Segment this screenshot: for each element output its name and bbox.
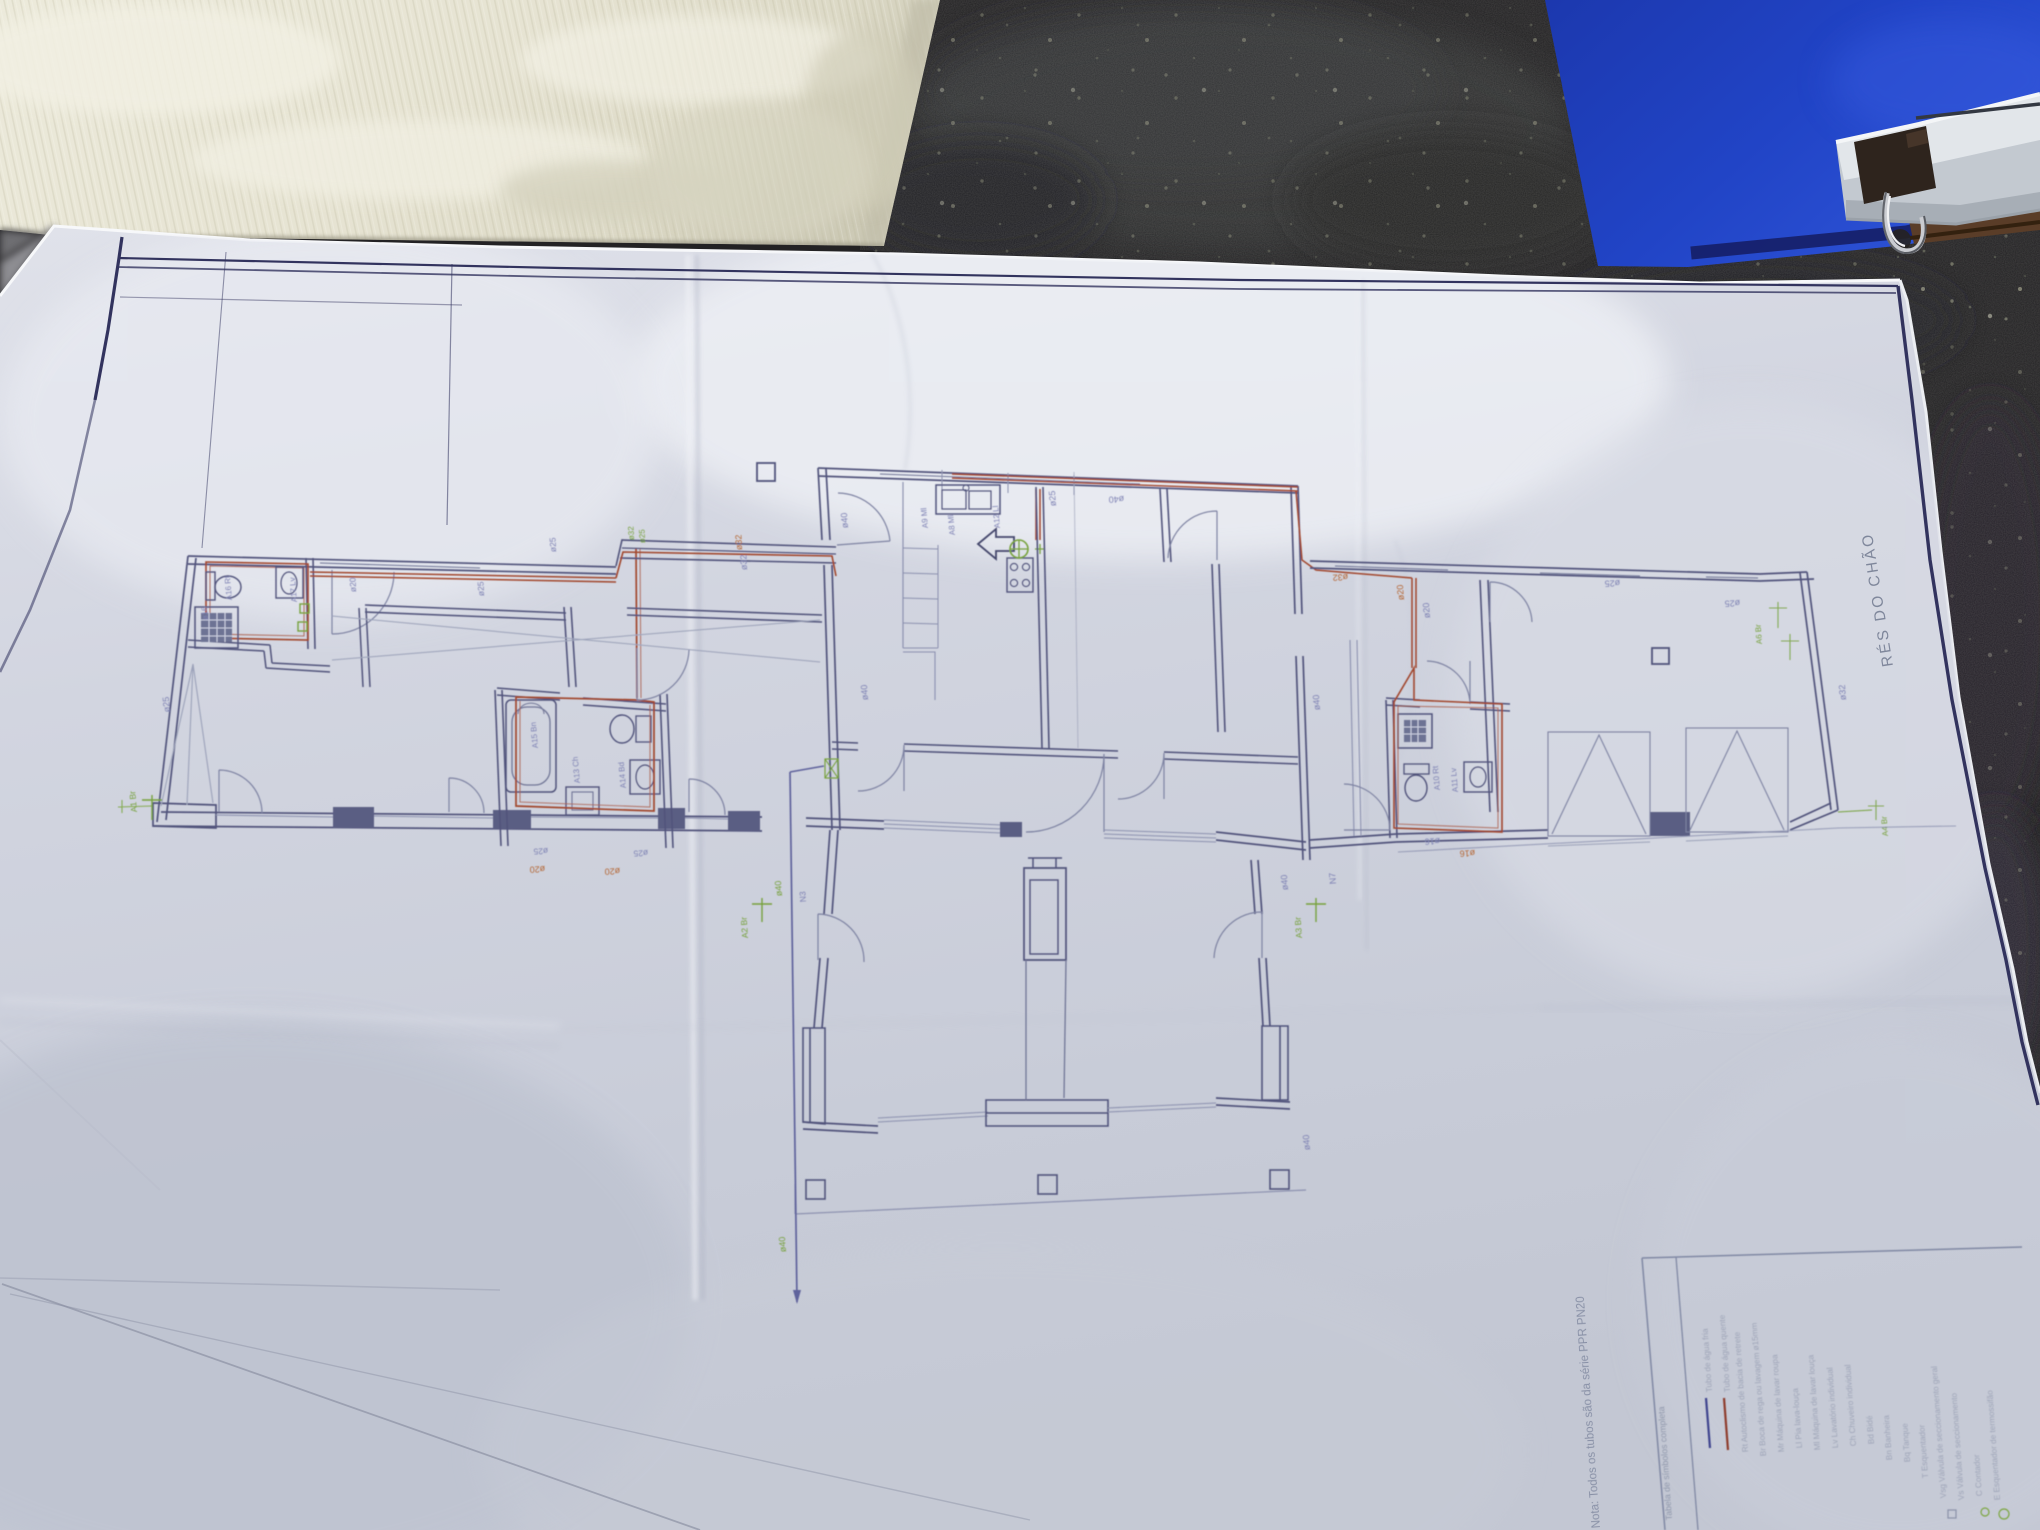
svg-text:ø32: ø32 (1837, 684, 1848, 700)
svg-text:N7: N7 (1327, 872, 1338, 884)
svg-text:ø40: ø40 (773, 880, 784, 896)
svg-text:ø32: ø32 (738, 554, 749, 570)
svg-text:ø40: ø40 (1279, 874, 1290, 890)
svg-text:ø25: ø25 (161, 696, 172, 712)
svg-text:ø20: ø20 (529, 864, 545, 875)
svg-text:A9 Ml: A9 Ml (919, 507, 930, 528)
svg-text:ø40: ø40 (1108, 494, 1124, 505)
svg-text:ø25: ø25 (475, 581, 486, 596)
svg-text:ø25: ø25 (547, 537, 558, 552)
svg-text:A4 Br: A4 Br (1880, 816, 1890, 837)
svg-text:ø20: ø20 (347, 577, 358, 592)
svg-text:A2 Br: A2 Br (739, 916, 750, 938)
svg-text:ø16: ø16 (1424, 836, 1440, 847)
svg-text:ø16: ø16 (1459, 848, 1475, 859)
svg-text:ø40: ø40 (859, 684, 870, 700)
svg-text:A3 Br: A3 Br (1293, 916, 1304, 938)
svg-text:ø20: ø20 (604, 866, 620, 877)
svg-text:ø40: ø40 (839, 512, 850, 528)
svg-text:ø25: ø25 (1724, 598, 1740, 609)
svg-text:ø25: ø25 (633, 848, 648, 859)
svg-text:ø25: ø25 (1047, 490, 1058, 506)
svg-text:A8 Ml: A8 Ml (946, 514, 957, 535)
svg-text:ø32: ø32 (733, 534, 744, 550)
svg-text:ø32: ø32 (1332, 572, 1348, 583)
svg-text:ø40: ø40 (1311, 694, 1322, 710)
svg-text:ø40: ø40 (777, 1236, 788, 1252)
svg-text:ø20: ø20 (1395, 584, 1406, 600)
svg-text:ø40: ø40 (1301, 1134, 1312, 1150)
svg-text:ø25: ø25 (533, 846, 548, 857)
svg-text:ø25: ø25 (638, 529, 647, 544)
svg-text:ø20: ø20 (1421, 602, 1432, 618)
svg-text:N3: N3 (797, 891, 808, 903)
svg-text:ø16: ø16 (200, 606, 210, 621)
svg-text:ø25: ø25 (1604, 578, 1620, 589)
svg-text:A6 Br: A6 Br (1754, 624, 1764, 645)
svg-text:ø32: ø32 (627, 526, 636, 541)
svg-text:A1 Br: A1 Br (127, 790, 139, 812)
